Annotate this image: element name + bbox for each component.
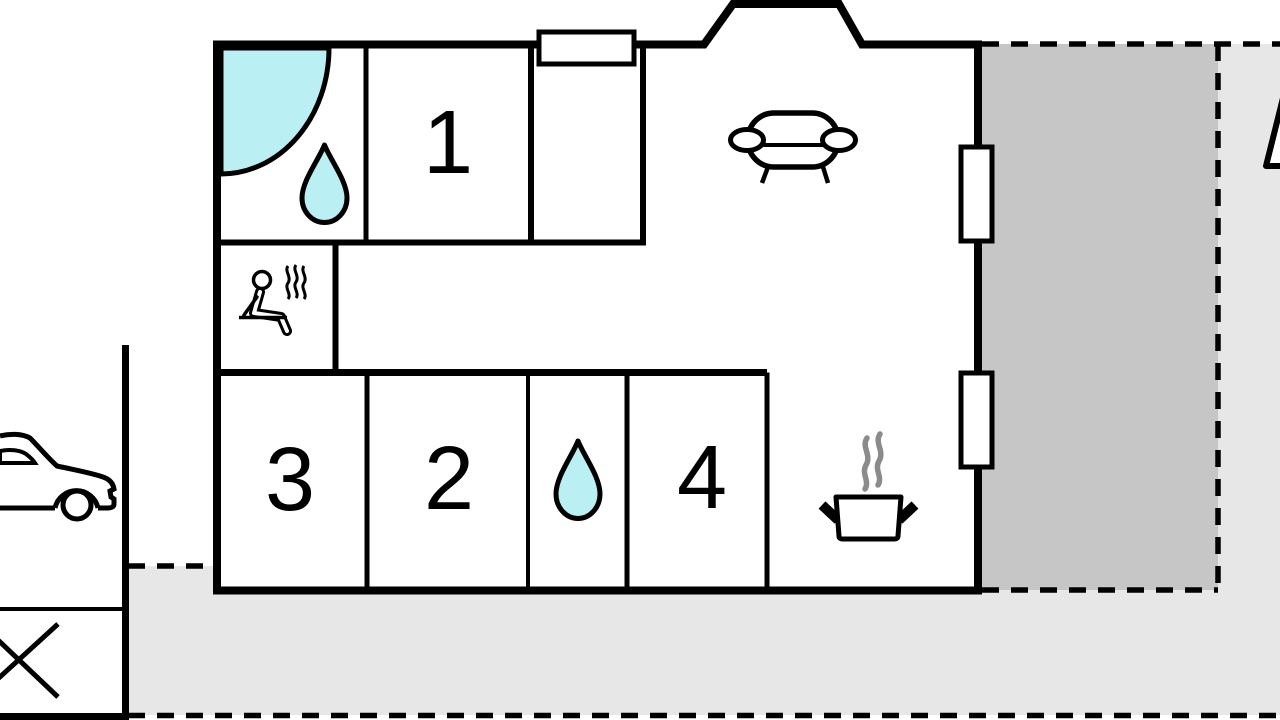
svg-text:4: 4 — [677, 428, 727, 528]
svg-text:1: 1 — [423, 93, 473, 193]
svg-text:3: 3 — [265, 430, 315, 530]
svg-text:2: 2 — [424, 429, 474, 529]
